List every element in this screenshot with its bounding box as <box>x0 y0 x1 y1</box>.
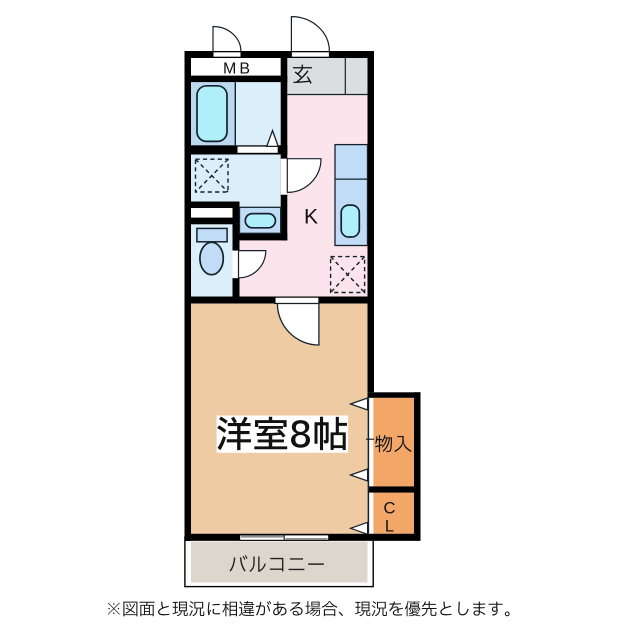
svg-text:MB: MB <box>223 60 253 77</box>
svg-text:C: C <box>384 500 396 518</box>
svg-text:L: L <box>385 518 394 536</box>
svg-text:K: K <box>304 206 318 229</box>
